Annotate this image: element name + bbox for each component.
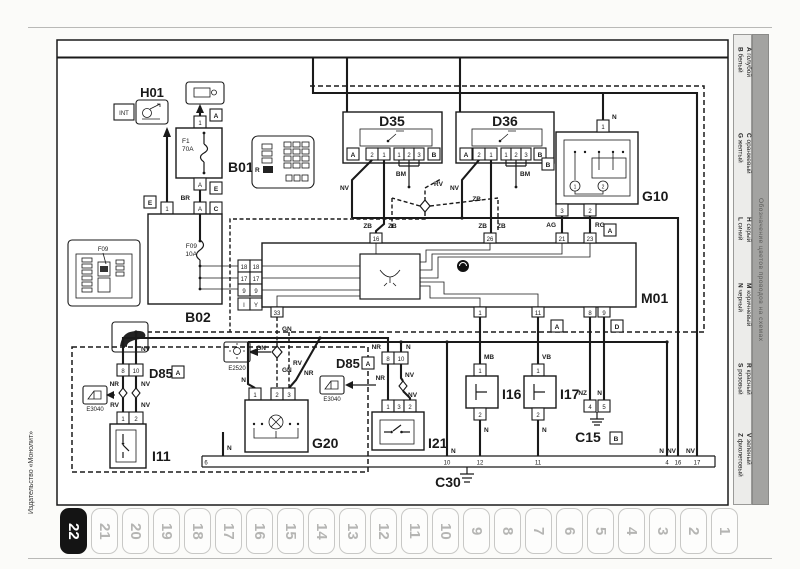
- wire-gn: GN: [282, 367, 292, 374]
- wire-nv: NV: [141, 381, 151, 388]
- legend-group: C оранжевыйG желтый: [735, 133, 752, 174]
- pin-16: 16: [675, 461, 682, 467]
- legend-entry: B белый: [735, 47, 744, 77]
- wire-n: N: [406, 344, 411, 351]
- page-tab-3: 3: [649, 508, 676, 554]
- conn-c: C: [214, 206, 219, 213]
- page-tab-number: 16: [251, 523, 268, 540]
- wire-br: BR: [181, 195, 191, 202]
- b01-label: B01: [228, 159, 254, 175]
- page-tab-number: 19: [158, 523, 175, 540]
- wiring-diagram: H01 INT E 1 1 A: [0, 0, 800, 569]
- f1-name: F1: [182, 138, 190, 145]
- conn-a: A: [176, 370, 181, 377]
- wire-n: N: [542, 427, 547, 434]
- e3040-label: E3040: [323, 397, 341, 403]
- conn-a: A: [464, 152, 469, 159]
- legend-entry: N черный: [735, 283, 744, 326]
- pin-11: 11: [535, 311, 542, 317]
- conn-a: A: [608, 228, 613, 235]
- wire-n: N: [484, 427, 489, 434]
- wire-nv: NV: [408, 392, 418, 399]
- wire-nv: NV: [667, 448, 677, 455]
- wire-zb: ZB: [363, 223, 372, 230]
- conn-e: E: [148, 200, 153, 207]
- h01-label: H01: [140, 85, 164, 100]
- conn-a: A: [214, 113, 219, 120]
- legend-color-name: голубой: [745, 53, 752, 77]
- g10-label: G10: [642, 188, 669, 204]
- pin-21: 21: [559, 237, 566, 243]
- page-tab-8: 8: [494, 508, 521, 554]
- legend-entry: G желтый: [735, 133, 744, 174]
- page-tab-22: 22: [60, 508, 87, 554]
- fuse-r-label: R: [255, 167, 260, 174]
- i16-label: I16: [502, 386, 522, 402]
- e2520-label: E2520: [228, 366, 246, 372]
- page-tab-17: 17: [215, 508, 242, 554]
- page-tab-15: 15: [277, 508, 304, 554]
- wire-n: N: [597, 390, 602, 397]
- page-tab-7: 7: [525, 508, 552, 554]
- wire-nv: NV: [141, 402, 151, 409]
- int-label: INT: [119, 111, 129, 117]
- page-tab-number: 5: [592, 527, 609, 535]
- h01-icon: [136, 100, 168, 124]
- pin-12: 12: [477, 461, 484, 467]
- legend-entry: A голубой: [744, 47, 753, 77]
- legend-color-name: красный: [745, 370, 752, 395]
- legend-color-name: зеленый: [745, 439, 752, 465]
- page-tab-6: 6: [556, 508, 583, 554]
- wire-nv: NV: [450, 185, 460, 192]
- legend-color-name: серый: [745, 224, 752, 243]
- e3040-icon-box: [320, 376, 344, 394]
- page-tab-number: 9: [468, 527, 485, 535]
- page-tab-number: 17: [220, 523, 237, 540]
- pin-11: 11: [535, 461, 542, 467]
- fuse-panel-illustration: R: [252, 136, 314, 188]
- legend-color-name: синий: [737, 223, 744, 241]
- page-tab-number: 1: [716, 527, 733, 535]
- pin-23: 23: [587, 237, 594, 243]
- page-tab-number: 15: [282, 523, 299, 540]
- wire-rv: RV: [434, 181, 444, 188]
- legend-entry: Z фиолетовый: [735, 433, 744, 477]
- legend-strip: A голубойB белыйC оранжевыйG желтыйH сер…: [733, 34, 752, 505]
- page-tab-number: 8: [499, 527, 516, 535]
- pin-17: 17: [241, 277, 248, 283]
- i11-switch: [110, 424, 146, 468]
- conn-b: B: [546, 162, 551, 169]
- legend-title-strip: Обозначение цветов проводов на схемах: [752, 34, 769, 505]
- page-tab-20: 20: [122, 508, 149, 554]
- page-tab-11: 11: [401, 508, 428, 554]
- legend-code: G: [737, 133, 744, 140]
- legend-color-name: черный: [737, 290, 744, 313]
- legend-group: V зеленыйZ фиолетовый: [735, 433, 752, 477]
- pin-18: 18: [241, 265, 248, 271]
- wire-bm: BM: [396, 171, 406, 178]
- legend-entry: R красный: [744, 363, 753, 395]
- legend-color-name: оранжевый: [745, 140, 752, 174]
- c30-label: C30: [435, 474, 461, 490]
- page-tab-21: 21: [91, 508, 118, 554]
- f09-callout: F09: [98, 247, 109, 253]
- wire-gn: GN: [282, 326, 292, 333]
- wire-n: N: [227, 445, 232, 452]
- e3040-label: E3040: [86, 407, 104, 413]
- conn-d: D: [615, 324, 620, 331]
- legend-color-name: желтый: [737, 140, 744, 163]
- legend-entry: H серый: [744, 217, 753, 242]
- highlighted-fuse: [263, 166, 273, 173]
- pin-1: 1: [574, 185, 577, 191]
- i11-label: I11: [152, 448, 171, 464]
- d85b-label: D85: [336, 356, 360, 371]
- f09-name: F09: [186, 243, 198, 250]
- wire-n: N: [451, 448, 456, 455]
- legend-entry: M коричневый: [744, 283, 753, 326]
- logo-icon: [457, 260, 469, 272]
- legend-entry: L синий: [735, 217, 744, 242]
- wire-nv: NV: [340, 185, 350, 192]
- page-tab-18: 18: [184, 508, 211, 554]
- page-tab-number: 21: [96, 523, 113, 540]
- legend-entry: S роз­овый: [735, 363, 744, 395]
- page-tab-19: 19: [153, 508, 180, 554]
- pin-16: 16: [373, 237, 380, 243]
- wire-nv: NV: [686, 448, 696, 455]
- c15-label: C15: [575, 429, 601, 445]
- conn-a: A: [198, 207, 202, 213]
- pin-10: 10: [133, 369, 140, 375]
- page-tab-number: 22: [65, 523, 82, 540]
- pin-26: 26: [487, 237, 494, 243]
- legend-color-name: фиолетовый: [737, 439, 744, 477]
- page-index-tabs: 22212019181716151413121110987654321: [60, 508, 738, 554]
- page-tab-number: 14: [313, 523, 330, 540]
- wire-nr: NR: [376, 375, 386, 382]
- page-tab-number: 11: [406, 523, 423, 539]
- legend-entry: V зеленый: [744, 433, 753, 477]
- conn-a: A: [366, 361, 371, 368]
- pin-10: 10: [444, 461, 451, 467]
- legend-color-name: белый: [737, 54, 744, 73]
- page-tab-16: 16: [246, 508, 273, 554]
- legend-title: Обозначение цветов проводов на схемах: [757, 198, 764, 341]
- b02-label: B02: [185, 309, 211, 325]
- legend-group: A голубойB белый: [735, 47, 752, 77]
- page-tab-number: 6: [561, 527, 578, 535]
- page-tab-5: 5: [587, 508, 614, 554]
- page-tab-number: 13: [344, 523, 361, 540]
- m01-label: M01: [641, 290, 668, 306]
- d36-label: D36: [492, 113, 518, 129]
- page-tab-number: 4: [623, 527, 640, 535]
- wire-nv: NV: [405, 372, 415, 379]
- f09-rating: 10A: [185, 251, 197, 258]
- page-tab-1: 1: [711, 508, 738, 554]
- wire-zb: ZB: [472, 196, 481, 203]
- page-tab-14: 14: [308, 508, 335, 554]
- wire-n: N: [612, 114, 617, 121]
- page-tab-number: 18: [189, 523, 206, 540]
- color-legend-sidebar: A голубойB белыйC оранжевыйG желтыйH сер…: [733, 34, 769, 505]
- legend-color-name: роз­овый: [737, 369, 744, 394]
- wire-nr: NR: [110, 381, 120, 388]
- wire-rv: RV: [110, 402, 120, 409]
- pin-2: 2: [602, 185, 605, 191]
- pin-17: 17: [694, 461, 701, 467]
- page-tab-number: 2: [685, 527, 702, 535]
- wire-nr: NR: [372, 344, 382, 351]
- f09-fuse-illustration: F09: [68, 240, 140, 306]
- d85a-label: D85: [149, 366, 173, 381]
- page-tab-9: 9: [463, 508, 490, 554]
- wire-n: N: [659, 448, 664, 455]
- wire-ag: AG: [546, 222, 556, 229]
- manual-page: ПОТОЛОЧНАЯ ЛАМПА САЛОНА Издательство «Мо…: [0, 0, 800, 569]
- i21-label: I21: [428, 435, 448, 451]
- conn-b: B: [432, 152, 437, 159]
- conn-a: A: [198, 183, 202, 189]
- pin-17: 17: [253, 277, 260, 283]
- lamp-icon: [186, 82, 224, 104]
- wire-rg: RG: [595, 222, 605, 229]
- pin-10: 10: [398, 357, 405, 363]
- legend-color-name: коричневый: [745, 290, 752, 326]
- d35-label: D35: [379, 113, 405, 129]
- legend-group: H серыйL синий: [735, 217, 752, 242]
- pin-33: 33: [274, 311, 281, 317]
- f1-rating: 70A: [182, 146, 194, 153]
- legend-entry: C оранжевый: [744, 133, 753, 174]
- conn-a: A: [351, 152, 356, 159]
- conn-y: Y: [254, 303, 258, 309]
- page-tab-number: 20: [127, 523, 144, 540]
- wire-nz: NZ: [578, 390, 587, 397]
- wire-vb: VB: [542, 354, 551, 361]
- wire-rv: RV: [293, 360, 303, 367]
- page-tab-10: 10: [432, 508, 459, 554]
- page-tab-number: 3: [654, 527, 671, 535]
- e3040-icon-box: [83, 386, 107, 404]
- page-tab-12: 12: [370, 508, 397, 554]
- wire-bm: BM: [520, 171, 530, 178]
- page-tab-number: 10: [437, 523, 454, 540]
- page-tab-2: 2: [680, 508, 707, 554]
- conn-b: B: [614, 436, 619, 443]
- page-tab-13: 13: [339, 508, 366, 554]
- page-tab-number: 12: [375, 523, 392, 540]
- page-tab-4: 4: [618, 508, 645, 554]
- page-tab-number: 7: [530, 527, 547, 535]
- legend-group: M коричневыйN черный: [735, 283, 752, 326]
- conn-e: E: [214, 186, 219, 193]
- wire-mb: MB: [484, 354, 494, 361]
- wire-nr: NR: [304, 370, 314, 377]
- pin-18: 18: [253, 265, 260, 271]
- i17-label: I17: [560, 386, 580, 402]
- wire-n: N: [241, 377, 246, 384]
- wire-zb: ZB: [478, 223, 487, 230]
- legend-group: R красныйS роз­овый: [735, 363, 752, 395]
- conn-a: A: [555, 324, 560, 331]
- g20-label: G20: [312, 435, 339, 451]
